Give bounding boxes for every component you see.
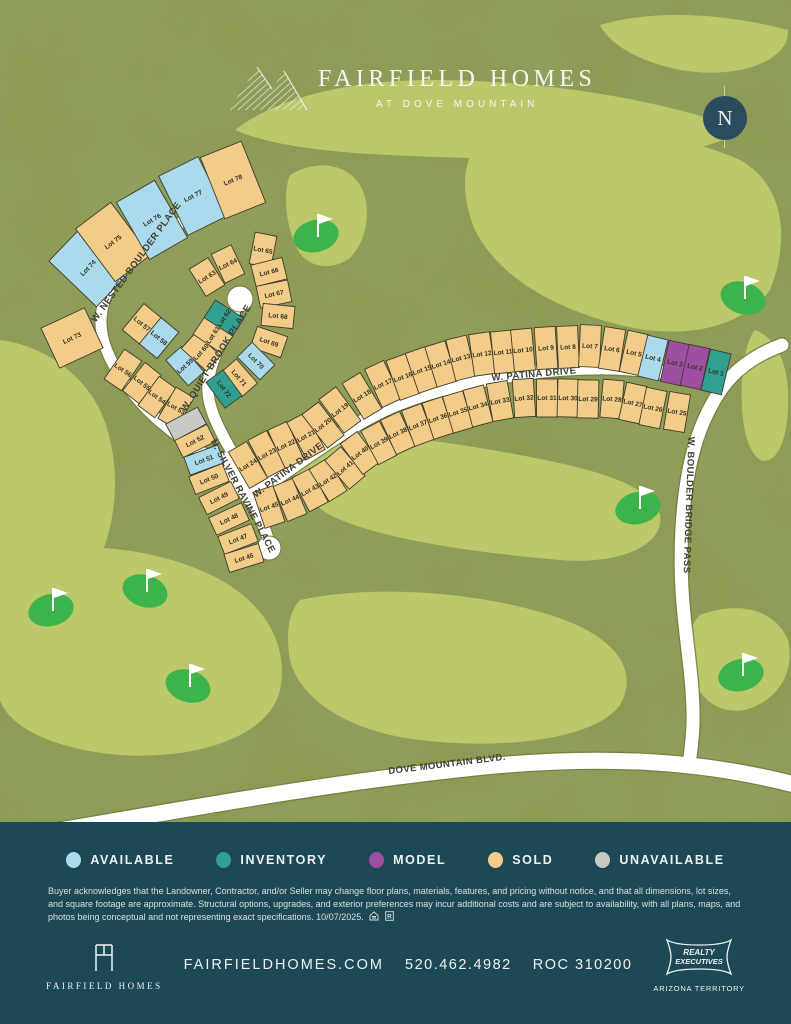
legend-item-available: AVAILABLE [66, 852, 174, 868]
lot-status-legend: AVAILABLEINVENTORYMODELSOLDUNAVAILABLE [0, 822, 791, 868]
phone-text: 520.462.4982 [405, 957, 512, 973]
brand-lockup: FAIRFIELD HOMES AT DOVE MOUNTAIN [228, 58, 596, 112]
lot-label-8: Lot 8 [560, 344, 576, 352]
north-compass: N [703, 96, 747, 140]
lot-label-9: Lot 9 [538, 345, 555, 353]
legend-dot-sold [488, 852, 503, 868]
legend-dot-inventory [216, 852, 231, 868]
footer-band: AVAILABLEINVENTORYMODELSOLDUNAVAILABLE B… [0, 822, 791, 1024]
realty-executives-badge: REALTY EXECUTIVES [661, 937, 737, 977]
legend-label-sold: SOLD [512, 853, 553, 867]
lot-label-7: Lot 7 [582, 343, 598, 351]
footer-contact-row: FAIRFIELD HOMES FAIRFIELDHOMES.COM 520.4… [0, 937, 791, 993]
legend-label-available: AVAILABLE [90, 853, 174, 867]
compass-label: N [717, 106, 732, 131]
roc-number: ROC 310200 [533, 957, 633, 973]
fairfield-homes-logo: FAIRFIELD HOMES [46, 940, 163, 991]
brand-subtitle: AT DOVE MOUNTAIN [318, 99, 596, 110]
site-map: Lot 74Lot 75Lot 76Lot 77Lot 78Lot 73Lot … [0, 0, 791, 822]
svg-text:R: R [387, 913, 392, 920]
legend-label-unavailable: UNAVAILABLE [619, 853, 724, 867]
legend-dot-model [369, 852, 384, 868]
lot-label-31: Lot 31 [537, 395, 557, 402]
footer-brand-name: FAIRFIELD HOMES [46, 981, 163, 991]
lot-label-30: Lot 30 [558, 395, 578, 402]
lot-label-29: Lot 29 [578, 396, 598, 403]
equal-housing-icon [369, 911, 379, 921]
website-text: FAIRFIELDHOMES.COM [184, 957, 384, 973]
legend-item-model: MODEL [369, 852, 446, 868]
svg-text:EXECUTIVES: EXECUTIVES [675, 957, 723, 966]
legend-item-sold: SOLD [488, 852, 553, 868]
fairfield-homes-monogram [84, 940, 124, 972]
legend-label-model: MODEL [393, 853, 446, 867]
realty-executives-logo: REALTY EXECUTIVES ARIZONA TERRITORY [653, 937, 745, 993]
legend-label-inventory: INVENTORY [240, 853, 327, 867]
mountain-logo-icon [228, 58, 308, 112]
legend-item-inventory: INVENTORY [216, 852, 327, 868]
brand-name: FAIRFIELD HOMES [318, 66, 596, 93]
lot-label-32: Lot 32 [514, 395, 534, 403]
site-plan-page: Lot 74Lot 75Lot 76Lot 77Lot 78Lot 73Lot … [0, 0, 791, 1024]
legend-dot-available [66, 852, 81, 868]
legend-item-unavailable: UNAVAILABLE [595, 852, 724, 868]
realtor-icon: R [385, 911, 394, 921]
disclaimer-text: Buyer acknowledges that the Landowner, C… [48, 885, 748, 924]
badge-subtitle: ARIZONA TERRITORY [653, 984, 745, 993]
svg-text:REALTY: REALTY [683, 948, 715, 957]
legend-dot-unavailable [595, 852, 610, 868]
